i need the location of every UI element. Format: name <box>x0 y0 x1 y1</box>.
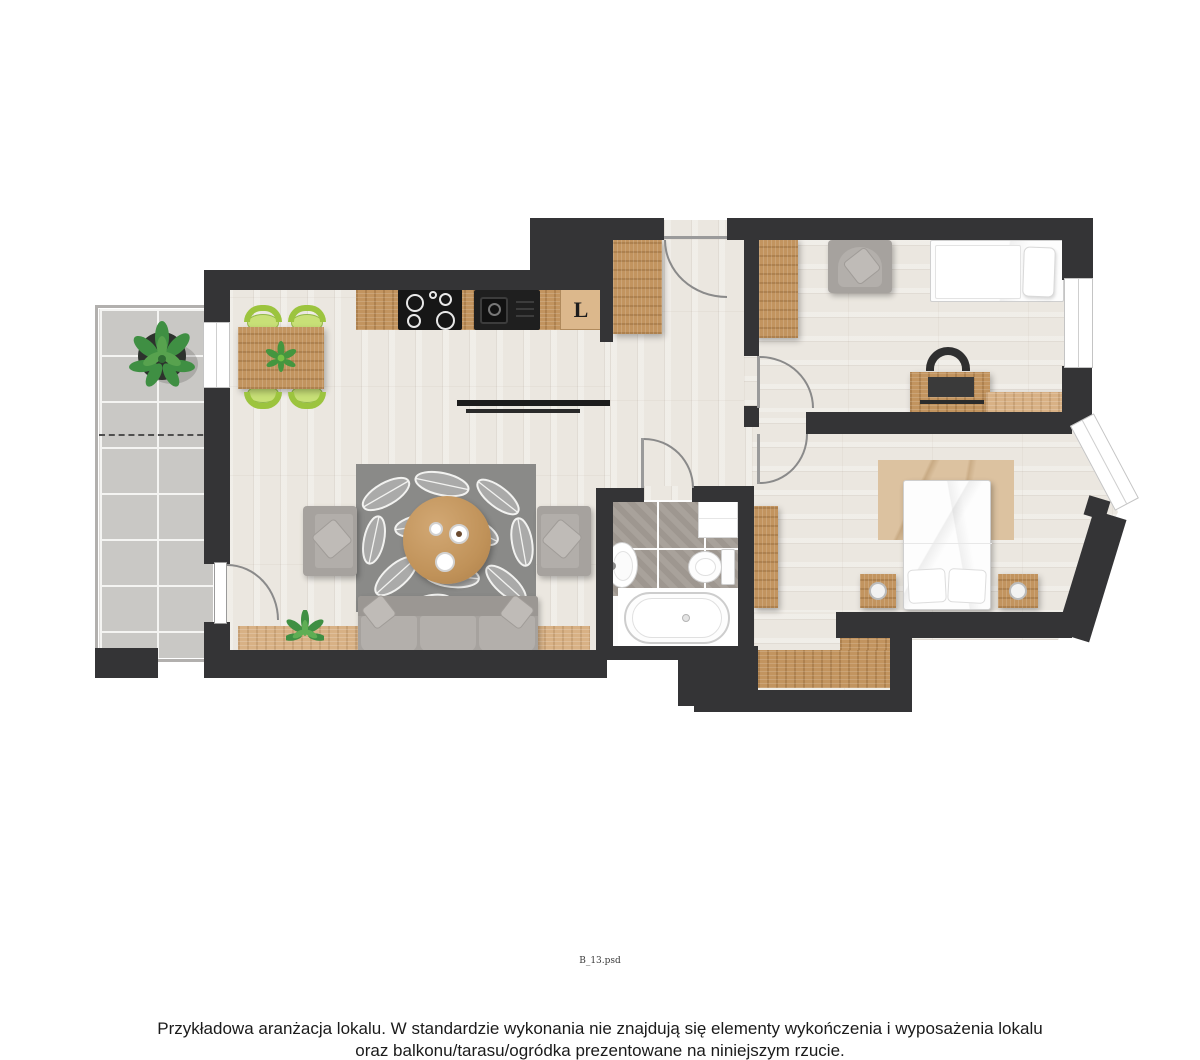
wall-segment <box>890 612 912 692</box>
kitchen-sink-unit <box>474 290 540 330</box>
wall-segment <box>596 488 644 502</box>
bathtub-basin <box>632 598 722 638</box>
fridge-unit: L <box>560 289 602 330</box>
sofa-cushion <box>420 616 476 652</box>
wall-segment <box>95 648 158 678</box>
burner <box>407 314 421 328</box>
bathtub <box>618 588 738 650</box>
study-window <box>1064 278 1093 368</box>
drainer-groove <box>516 308 534 310</box>
bed-pillow <box>1022 246 1056 297</box>
study-wardrobe <box>755 238 798 338</box>
armchair-left <box>303 506 357 576</box>
wall-segment <box>727 218 1093 240</box>
tv-wall-mount <box>457 400 610 406</box>
bathtub-drain <box>682 614 690 622</box>
mattress <box>935 245 1021 299</box>
table-lamp <box>1009 582 1027 600</box>
single-bed <box>930 240 1064 302</box>
coffee-table <box>403 496 491 584</box>
wall-segment <box>596 490 613 660</box>
bed-pillow <box>907 568 947 604</box>
desk-side-shelf <box>986 392 1066 414</box>
drainer-groove <box>516 315 534 317</box>
bathroom-cabinet <box>698 498 738 538</box>
wall-segment <box>738 486 754 660</box>
wall-segment <box>597 218 664 240</box>
balcony-divider-dashed-line <box>99 434 213 436</box>
sink-tap <box>488 303 501 316</box>
table-lamp <box>869 582 887 600</box>
desk <box>910 372 990 414</box>
fridge-label: L <box>574 297 589 323</box>
cooktop <box>398 289 462 330</box>
disclaimer-line-2: oraz balkonu/tarasu/ogródka prezentowane… <box>0 1040 1200 1060</box>
coffee <box>456 531 462 537</box>
burner <box>439 293 452 306</box>
balcony-door-leaf <box>214 562 227 624</box>
wall-segment <box>744 240 759 356</box>
wall-segment <box>204 270 550 290</box>
burner <box>429 291 437 299</box>
toilet-tank <box>721 549 735 585</box>
burner <box>436 311 455 330</box>
wall-segment <box>530 218 600 290</box>
bed-pillow <box>947 568 987 604</box>
wall-segment <box>204 386 230 564</box>
desk-monitor <box>928 377 974 397</box>
tv-screen <box>466 409 580 413</box>
desk-keyboard <box>920 400 984 404</box>
sink-basin <box>613 551 633 581</box>
entry-door-leaf <box>664 236 727 239</box>
sideboard-plant <box>286 610 324 652</box>
cup <box>429 522 443 536</box>
floorplan-canvas: L <box>0 0 1200 1060</box>
cup <box>449 524 469 544</box>
wall-segment <box>806 412 1072 434</box>
living-room-window <box>203 322 230 388</box>
drawing-filename: B_13.psd <box>0 956 1200 966</box>
armchair-right <box>537 506 591 576</box>
duvet-fold <box>904 543 992 544</box>
wall-segment <box>1062 240 1093 280</box>
window-pane-line <box>1078 279 1079 367</box>
alcove-wardrobe-bottom <box>758 650 892 688</box>
hallway-wardrobe <box>613 240 662 334</box>
nightstand-left <box>860 574 896 608</box>
wall-segment <box>744 406 759 427</box>
double-bed <box>903 480 991 610</box>
wall-segment <box>694 690 912 712</box>
toilet-seat <box>695 558 716 576</box>
wall-segment <box>204 650 607 678</box>
wall-segment <box>836 612 1072 638</box>
nightstand-right <box>998 574 1038 608</box>
balcony-plant <box>124 318 202 396</box>
disclaimer-line-1: Przykładowa aranżacja lokalu. W standard… <box>0 1018 1200 1040</box>
disclaimer: Przykładowa aranżacja lokalu. W standard… <box>0 1018 1200 1060</box>
study-armchair <box>828 240 892 293</box>
cabinet-divider <box>699 518 737 519</box>
burner <box>406 294 424 312</box>
dining-table-plant <box>264 341 298 375</box>
bedroom-wardrobe-left <box>754 506 778 608</box>
drainer-groove <box>516 301 534 303</box>
wall-segment <box>204 270 230 324</box>
window-pane-line <box>216 323 217 387</box>
cup <box>435 552 455 572</box>
sofa <box>358 596 538 654</box>
